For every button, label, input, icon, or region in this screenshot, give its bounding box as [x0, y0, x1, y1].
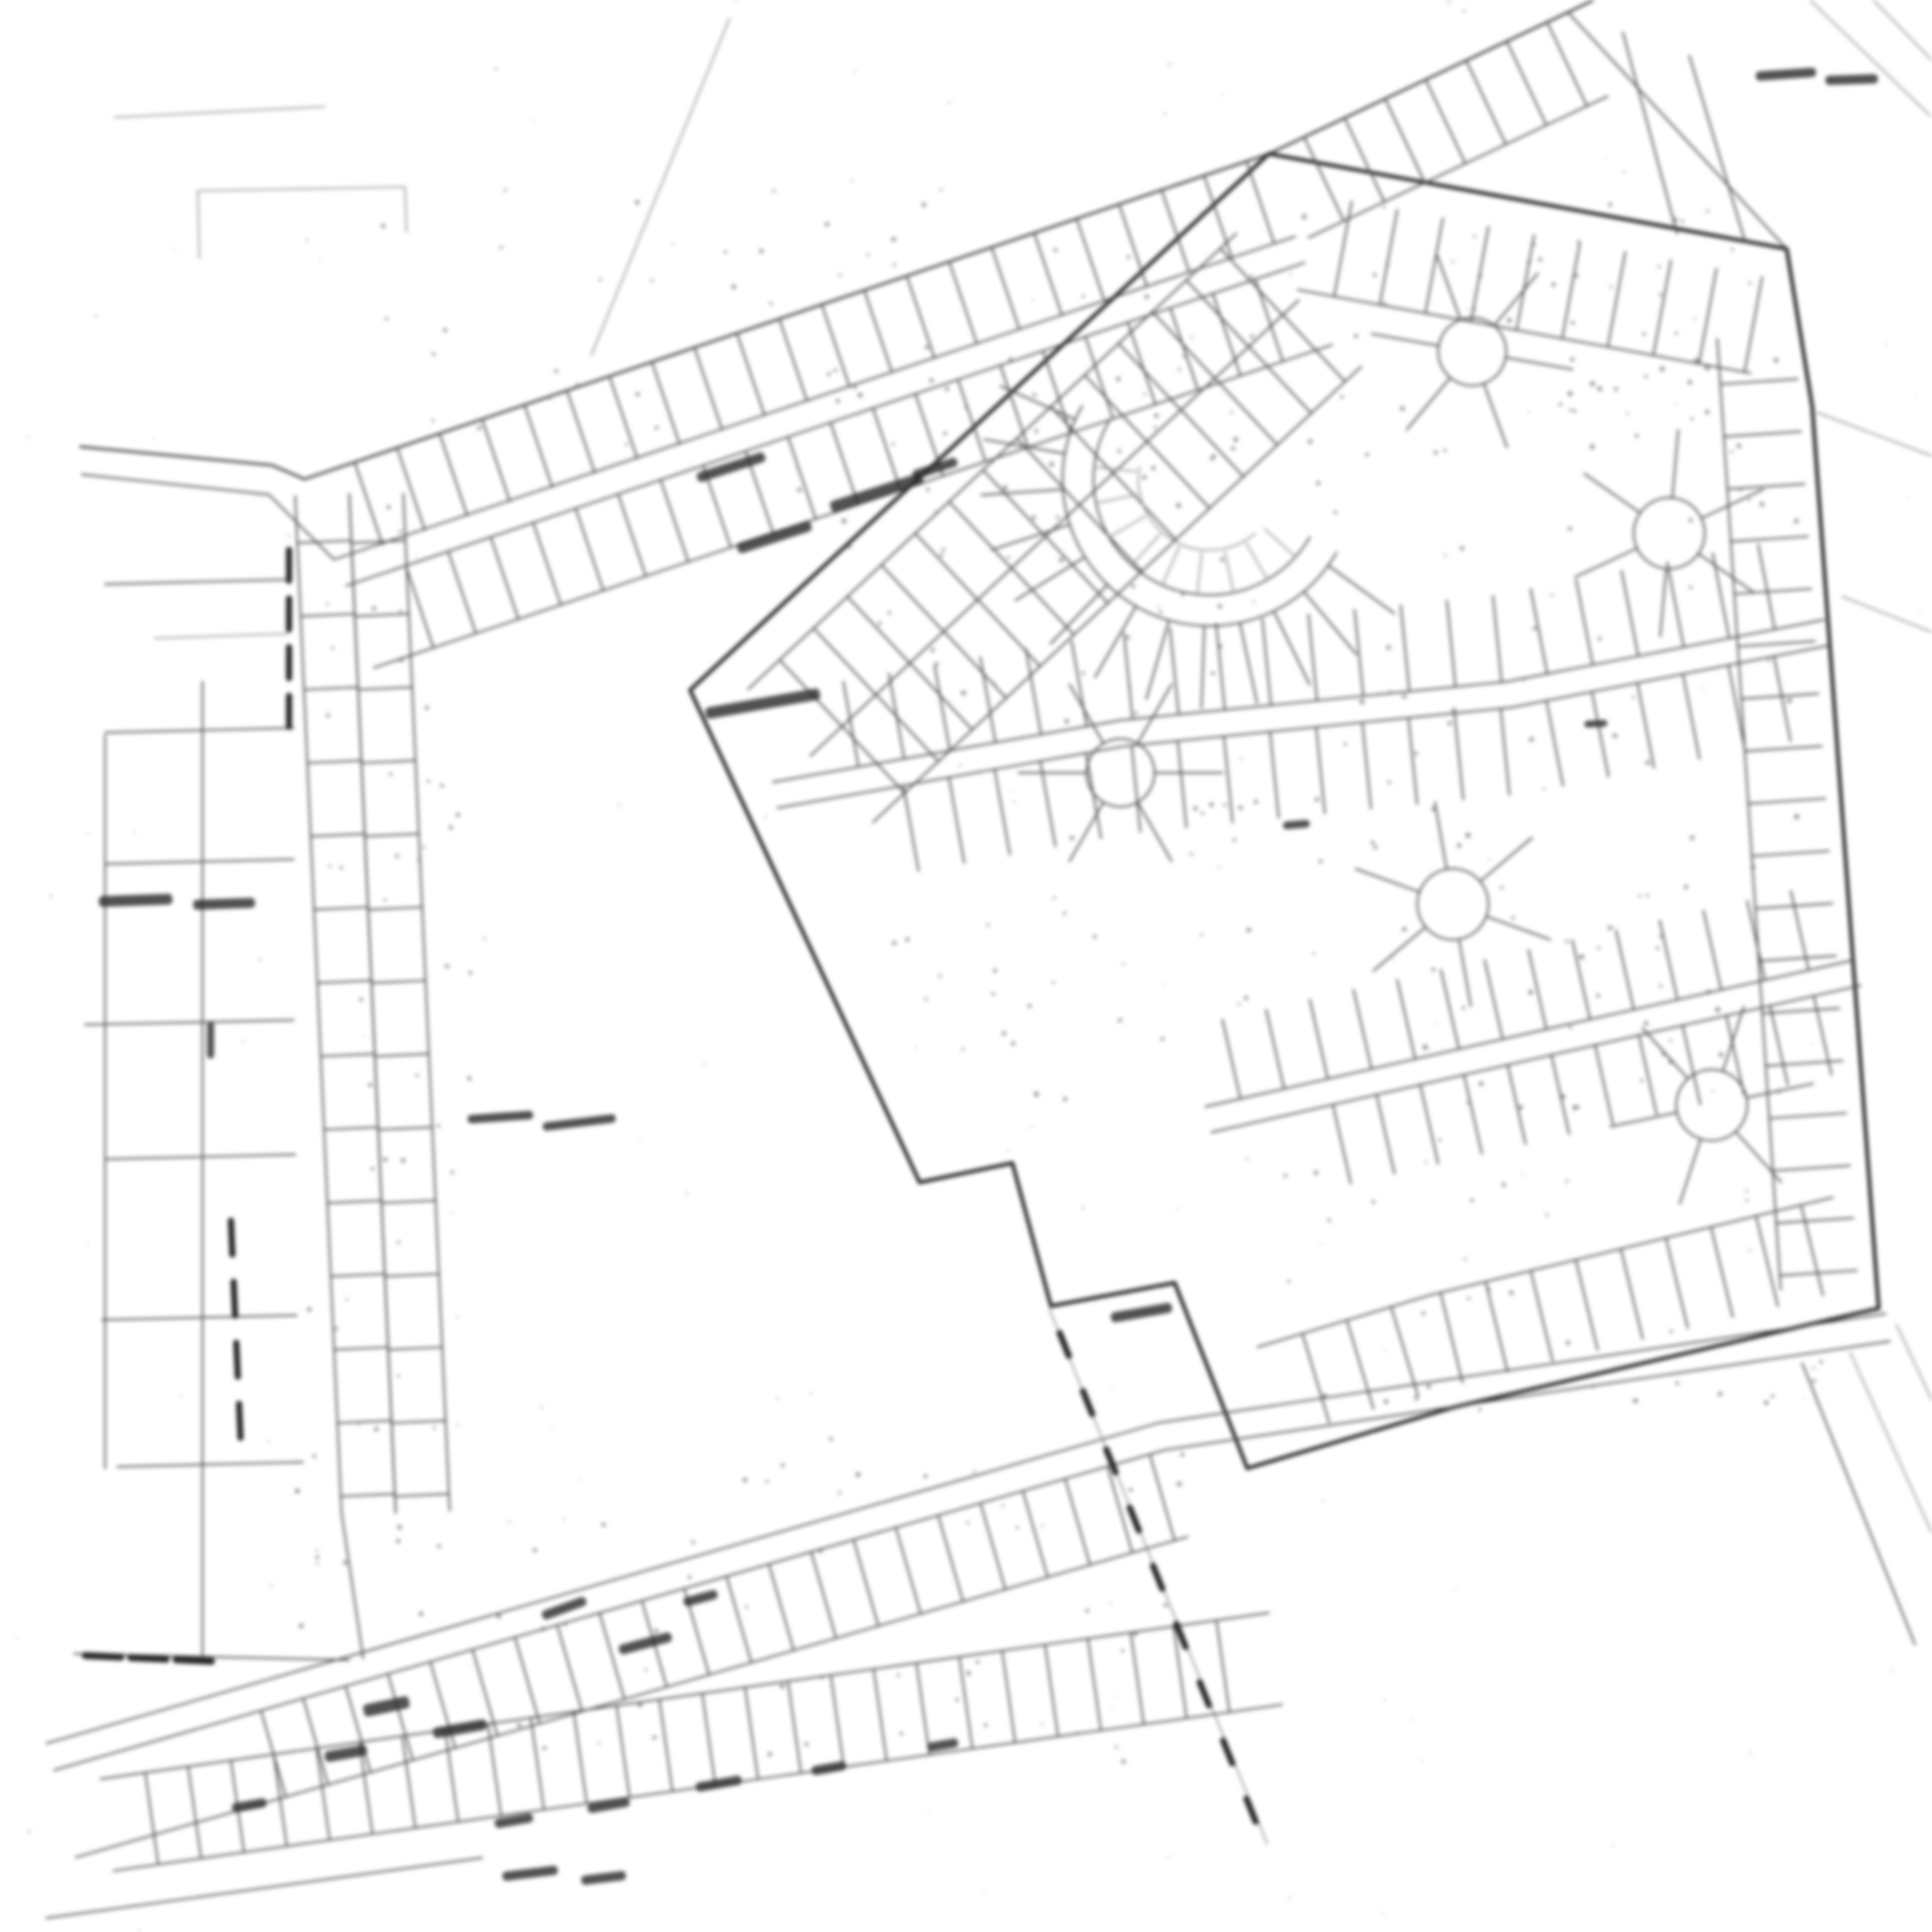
west-column-west-lots [295, 494, 396, 1513]
interior-L-lots-north [1223, 891, 1809, 1099]
northeast-block-division-2 [1689, 56, 1745, 241]
northeast-corner-road-2 [1873, 0, 1932, 60]
diagonal-road-dashes [1060, 1333, 1256, 1821]
north-strip-row-1 [355, 162, 1274, 544]
crescent-street-inner [1094, 421, 1310, 595]
cul-de-sac-1 [1372, 256, 1573, 447]
west-block-h2 [155, 634, 287, 638]
west-column-dashes-south [231, 1221, 240, 1438]
cul-de-sac-3 [1019, 685, 1223, 862]
interior-upperleft-row-1 [748, 233, 1299, 756]
interior-M-lots-south [903, 656, 1791, 871]
west-block-h1 [105, 580, 287, 584]
section-line [591, 19, 730, 355]
southeast-road-1 [1802, 1363, 1915, 1645]
south-road-A-second-edge [54, 1342, 1889, 1770]
west-block-h6 [105, 1155, 295, 1159]
parcel-boundary [690, 154, 1879, 1468]
west-block-h5 [85, 1020, 294, 1025]
interior-east-lots [1717, 339, 1857, 1290]
interior-street-L [1206, 960, 1860, 1132]
southwest-extra-lot-line [46, 1858, 482, 1918]
south-road-B [100, 1613, 1269, 1779]
south-road-A [46, 1314, 1886, 1743]
east-side-road-2 [1842, 597, 1932, 632]
interior-south-lots [1257, 1197, 1832, 1422]
plat-map [0, 0, 1932, 1932]
southeast-road-2 [1850, 1352, 1932, 1533]
northeast-block-division-1 [1623, 32, 1677, 233]
faint-road-northwest [114, 107, 325, 117]
interior-top-lots [1298, 202, 1762, 373]
southeast-road-3 [1896, 1325, 1932, 1400]
northeast-corner-road-1 [1810, 0, 1930, 116]
west-block-h8 [117, 1462, 303, 1467]
lot-number-speckles [15, 0, 1920, 1932]
north-street-inner-edge [82, 236, 1295, 560]
west-block-h7 [102, 1315, 297, 1320]
interior-street-M [773, 620, 1829, 808]
cul-de-sac-4 [1355, 802, 1550, 1006]
west-block-h3 [105, 728, 294, 733]
column-south-connector [342, 1513, 363, 1658]
northeast-block-row [1304, 22, 1608, 238]
west-block-h4 [105, 859, 294, 864]
north-strip-row-2 [374, 279, 1332, 668]
interior-M-lots-north [843, 544, 1774, 767]
faint-structure-northwest [198, 187, 406, 258]
cul-de-sac-5 [1611, 1007, 1813, 1204]
scan-page [0, 0, 1932, 1932]
crescent-street-outer [1063, 406, 1337, 626]
east-side-road-1 [1818, 413, 1932, 456]
